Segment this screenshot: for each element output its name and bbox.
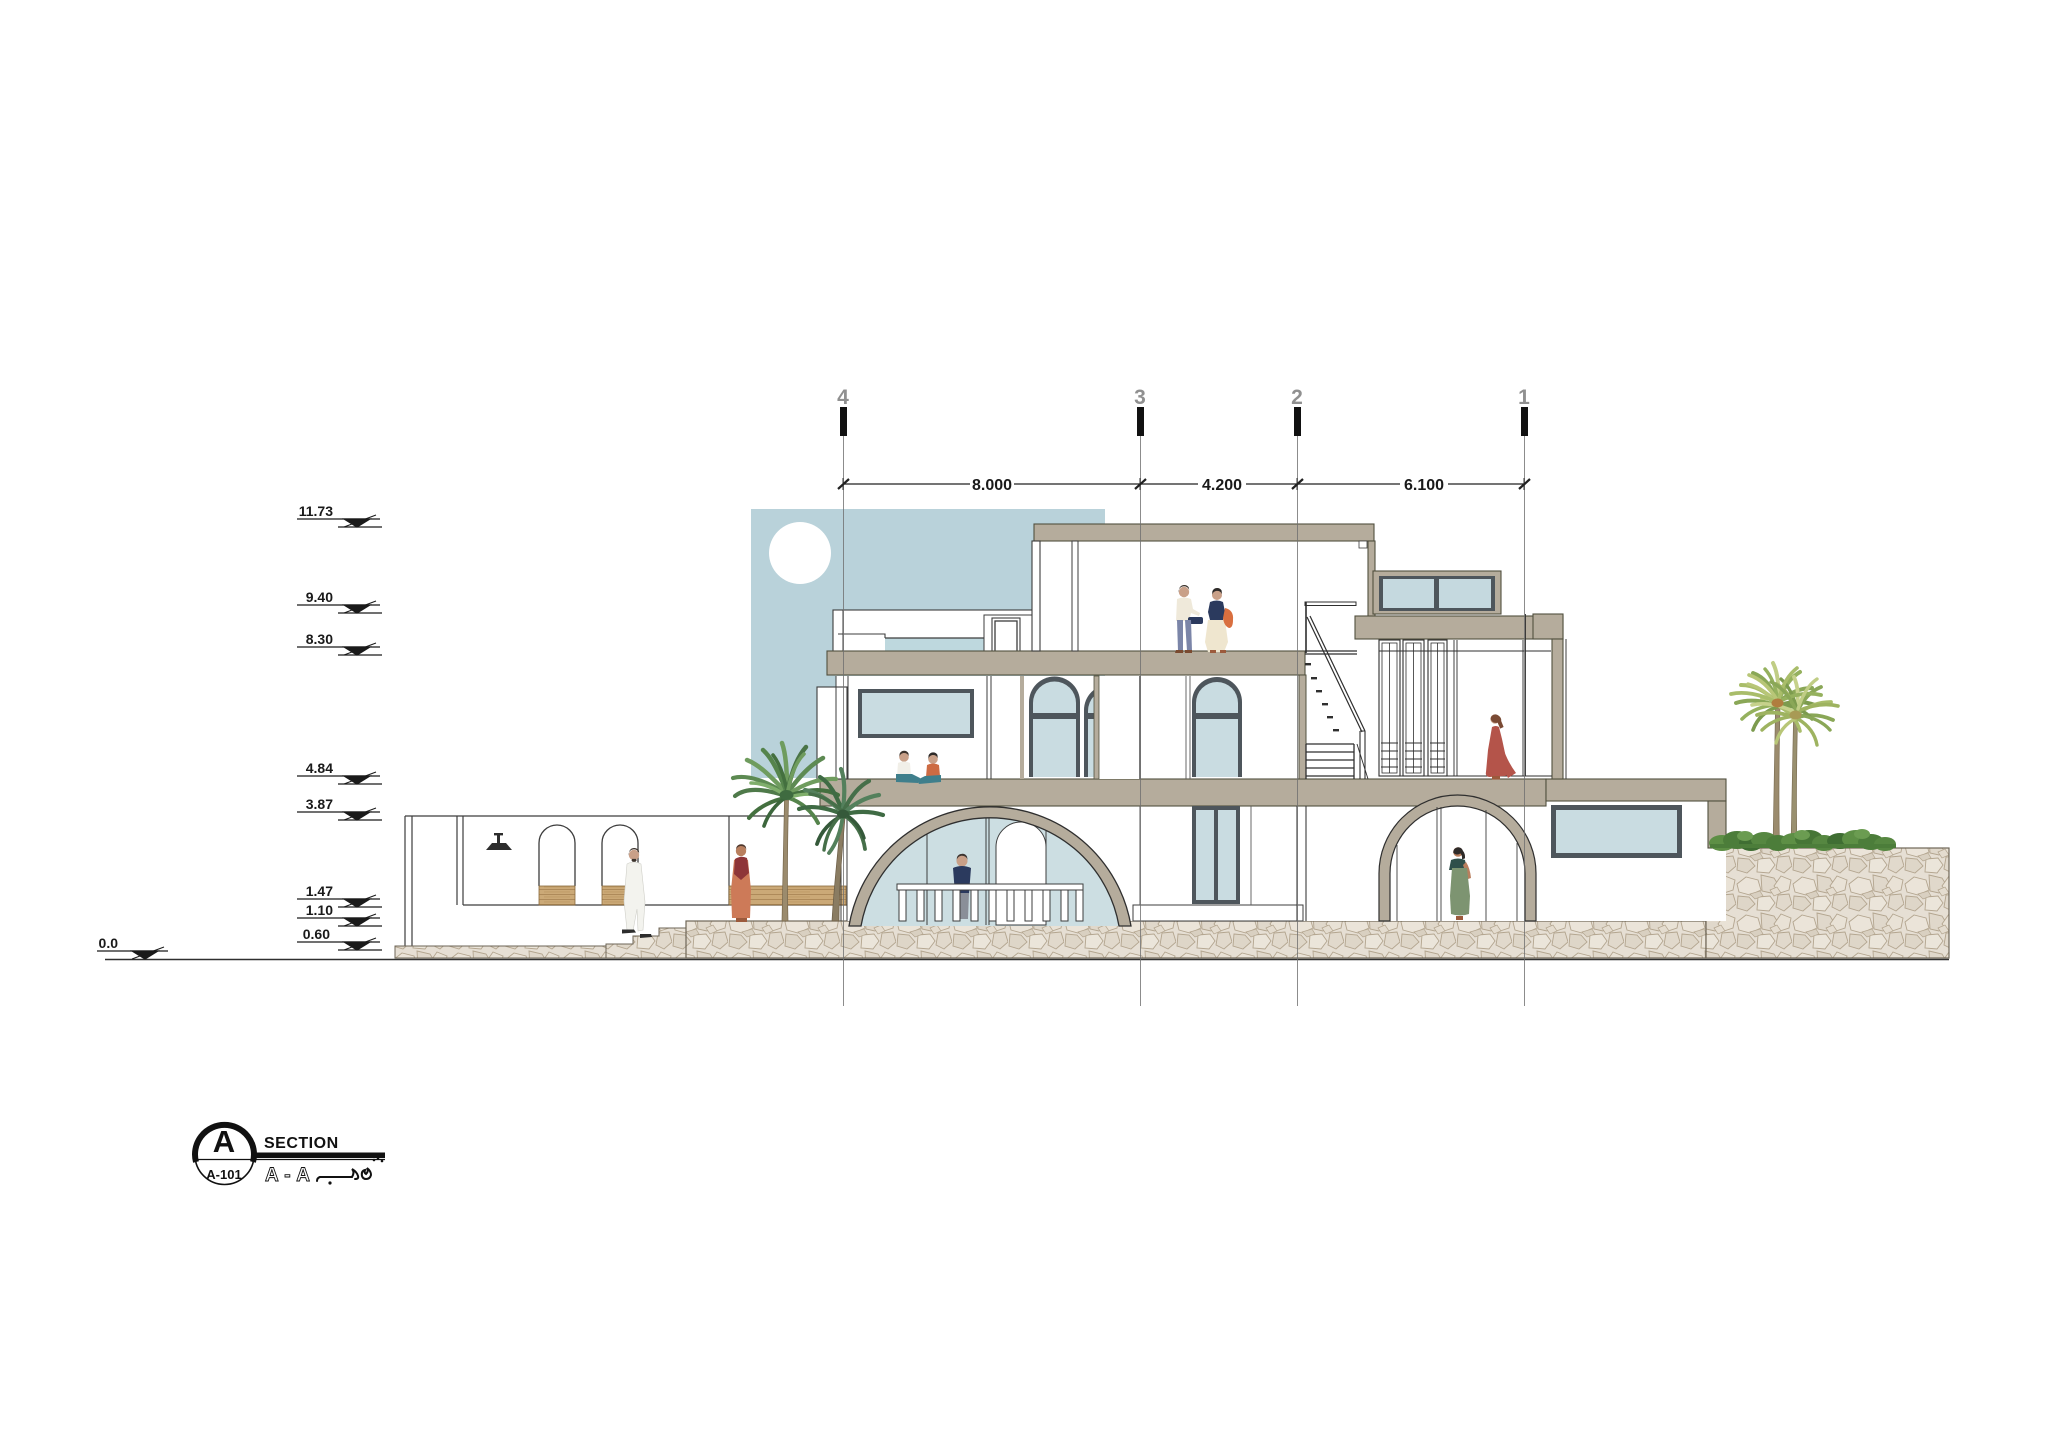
svg-text:6.100: 6.100	[1404, 477, 1444, 494]
svg-text:2: 2	[1291, 386, 1303, 409]
svg-text:A: A	[213, 1124, 235, 1159]
svg-text:4.84: 4.84	[306, 760, 333, 776]
svg-text:3.87: 3.87	[306, 796, 333, 812]
svg-text:3: 3	[1134, 386, 1146, 409]
svg-text:1.10: 1.10	[306, 902, 333, 918]
svg-text:A - A: A - A	[265, 1165, 310, 1186]
svg-text:4: 4	[837, 386, 849, 409]
svg-text:1: 1	[1518, 386, 1530, 409]
svg-text:SECTION: SECTION	[264, 1135, 339, 1152]
svg-text:8.000: 8.000	[972, 477, 1012, 494]
svg-text:A-101: A-101	[206, 1167, 241, 1182]
svg-text:1.47: 1.47	[306, 883, 333, 899]
svg-text:9.40: 9.40	[306, 589, 333, 605]
svg-text:8.30: 8.30	[306, 631, 333, 647]
svg-text:11.73: 11.73	[299, 503, 333, 519]
svg-text:0.0: 0.0	[99, 935, 119, 951]
svg-text:0.60: 0.60	[303, 926, 330, 942]
svg-text:4.200: 4.200	[1202, 477, 1242, 494]
